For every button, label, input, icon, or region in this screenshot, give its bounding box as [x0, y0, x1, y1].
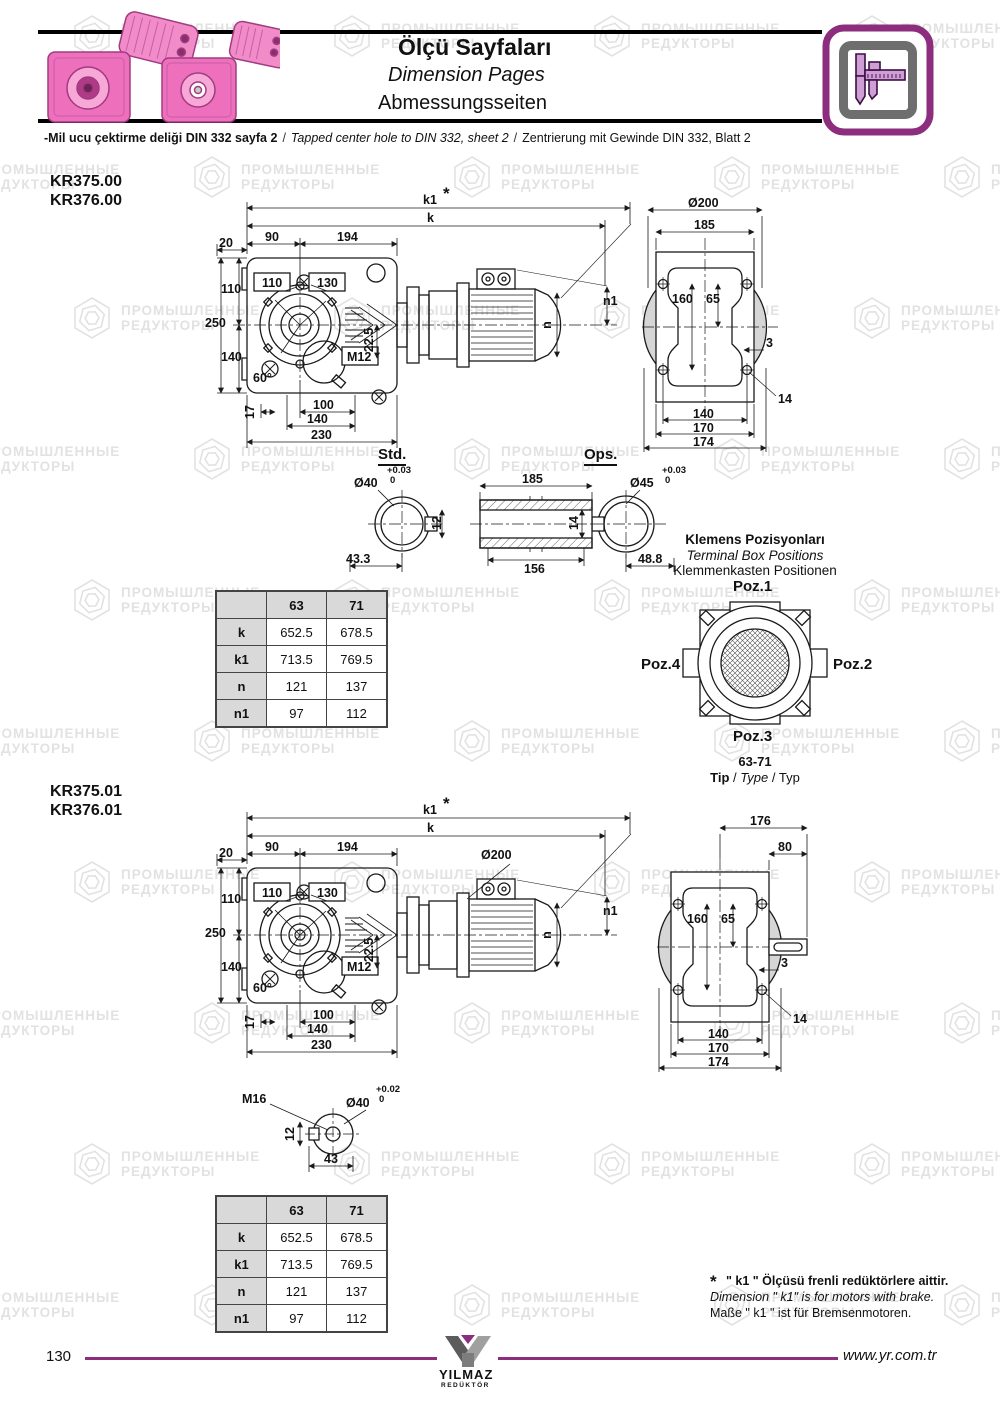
dim-194: 194 — [337, 840, 358, 854]
dim-14: 14 — [567, 516, 581, 530]
footnote-star-ref-2: * — [443, 794, 450, 814]
dim-174: 174 — [708, 1055, 729, 1069]
model-kr375-01: KR375.01 — [50, 782, 122, 801]
tip-tr: Tip — [710, 770, 729, 785]
logo-name: YILMAZ — [439, 1367, 493, 1382]
dim-80: 80 — [778, 840, 792, 854]
cell-k-63: 652.5 — [267, 619, 327, 646]
poz-2: Poz.2 — [833, 656, 872, 673]
tol-zero: 0 — [379, 1095, 384, 1105]
row-k1: k1 — [216, 1251, 267, 1278]
dim-dia45: Ø45 — [630, 476, 654, 490]
dim-dia200: Ø200 — [481, 848, 512, 862]
dim-3: 3 — [781, 956, 788, 970]
cell-n-63: 121 — [267, 1278, 327, 1305]
caliper-icon — [822, 24, 934, 136]
note-tr: -Mil ucu çektirme deliği DIN 332 sayfa 2 — [44, 131, 277, 145]
dim-156: 156 — [524, 562, 545, 576]
dim-60deg: 60° — [253, 371, 272, 385]
dimension-table-2: 63 71 k 652.5 678.5 k1 713.5 769.5 n 121… — [215, 1195, 388, 1333]
dim-160: 160 — [687, 912, 708, 926]
dim-140: 140 — [708, 1027, 729, 1041]
dim-140: 140 — [221, 960, 242, 974]
row-k: k — [216, 1224, 267, 1251]
solid-shaft-end-drawing: M16 Ø40 +0.02 0 12 43 — [230, 1072, 460, 1184]
col-71: 71 — [327, 591, 388, 619]
callout-130: 130 — [317, 886, 338, 900]
footnote-star-ref-1: * — [443, 184, 450, 204]
dim-194: 194 — [337, 230, 358, 244]
dim-14: 14 — [793, 1012, 807, 1026]
dim-dia40: Ø40 — [354, 476, 378, 490]
row-n1: n1 — [216, 700, 267, 728]
cell-n-71: 137 — [327, 673, 388, 700]
dim-3: 3 — [766, 336, 773, 350]
cell-k1-71: 769.5 — [327, 646, 388, 673]
page-title-en: Dimension Pages — [388, 64, 545, 87]
col-71: 71 — [327, 1196, 388, 1224]
page-title-tr: Ölçü Sayfaları — [398, 34, 551, 61]
row-n: n — [216, 1278, 267, 1305]
dim-k1: k1 — [423, 193, 437, 207]
brake-footnote: * " k1 " Ölçüsü frenli redüktörlere aitt… — [710, 1274, 1000, 1322]
table-corner — [216, 591, 267, 619]
front-assembly-drawing-2: k1 * k 90 194 Ø200 20 110 130 110 250 14… — [205, 800, 640, 1065]
note-sep1: / — [282, 131, 285, 145]
poz-1: Poz.1 — [733, 578, 772, 595]
catalog-page: ПРОМЫШЛЕННЫЕРЕДУКТОРЫПРОМЫШЛЕННЫЕРЕДУКТО… — [0, 0, 1000, 1414]
dim-65: 65 — [721, 912, 735, 926]
row-n1: n1 — [216, 1305, 267, 1333]
front-assembly-drawing-1: k1 * k 90 194 20 110 130 110 250 140 60°… — [205, 190, 640, 455]
col-63: 63 — [267, 591, 327, 619]
dim-17: 17 — [243, 405, 257, 419]
note-sep2: / — [514, 131, 517, 145]
dim-60deg: 60° — [253, 981, 272, 995]
cell-k1-63: 713.5 — [267, 646, 327, 673]
dim-dia40: Ø40 — [346, 1096, 370, 1110]
tol-zero: 0 — [390, 476, 395, 486]
terminal-type-line: Tip / Type / Typ — [645, 770, 865, 785]
dim-n1: n1 — [603, 904, 618, 918]
dim-140: 140 — [693, 407, 714, 421]
dim-43-3: 43.3 — [346, 552, 370, 566]
note-de: Zentrierung mit Gewinde DIN 332, Blatt 2 — [522, 131, 751, 145]
dim-17: 17 — [243, 1015, 257, 1029]
tip-de: Typ — [779, 770, 800, 785]
dim-43: 43 — [324, 1152, 338, 1166]
callout-110: 110 — [262, 276, 282, 290]
dim-n1: n1 — [603, 294, 618, 308]
dim-22-5: 22.5 — [362, 328, 376, 352]
note-en: Tapped center hole to DIN 332, sheet 2 — [291, 131, 509, 145]
tol-zerob: 0 — [665, 476, 670, 486]
back-view-drawing-2: 176 80 160 65 3 14 140 170 174 — [645, 812, 855, 1077]
poz-4: Poz.4 — [641, 656, 680, 673]
cell-n-63: 121 — [267, 673, 327, 700]
cell-n1-63: 97 — [267, 700, 327, 728]
cell-k-71: 678.5 — [327, 619, 388, 646]
row-k: k — [216, 619, 267, 646]
dim-170: 170 — [708, 1041, 729, 1055]
website-url: www.yr.com.tr — [843, 1347, 937, 1364]
cell-k-63: 652.5 — [267, 1224, 327, 1251]
dim-14: 14 — [778, 392, 792, 406]
dim-185: 185 — [522, 472, 543, 486]
back-view-drawing-1: Ø200 185 160 65 3 14 140 170 174 — [630, 192, 840, 457]
footer-rule-right — [498, 1357, 838, 1360]
label-std: Std. — [378, 446, 406, 466]
tip-sep2: / — [772, 770, 776, 785]
logo-subname: REDÜKTÖR — [441, 1382, 490, 1389]
yilmaz-logo-icon — [437, 1334, 499, 1368]
dim-20: 20 — [219, 846, 233, 860]
footnote-tr: " k1 " Ölçüsü frenli redüktörlere aittir… — [726, 1274, 1000, 1288]
terminal-size-range: 63-71 — [645, 754, 865, 769]
tip-sep1: / — [733, 770, 737, 785]
dim-110: 110 — [221, 892, 241, 906]
model-codes-1: KR375.00 KR376.00 — [50, 172, 122, 210]
dim-k: k — [427, 211, 434, 225]
footnote-star: * — [710, 1272, 717, 1292]
dim-90: 90 — [265, 840, 279, 854]
dim-100: 100 — [313, 1008, 334, 1022]
dim-20: 20 — [219, 236, 233, 250]
dim-170: 170 — [693, 421, 714, 435]
shaft-std-ops-drawing: Std. Ops. Ø40 +0.03 0 12 43.3 185 156 14… — [330, 446, 690, 580]
callout-110: 110 — [262, 886, 282, 900]
dim-65: 65 — [706, 292, 720, 306]
dim-174: 174 — [693, 435, 714, 449]
page-number: 130 — [46, 1348, 71, 1365]
footnote-en: Dimension " k1" is for motors with brake… — [710, 1290, 1000, 1304]
cell-k1-63: 713.5 — [267, 1251, 327, 1278]
table-corner — [216, 1196, 267, 1224]
gearmotor-photos — [40, 6, 280, 134]
page-title-de: Abmessungsseiten — [378, 92, 547, 115]
dim-k1: k1 — [423, 803, 437, 817]
dim-m16: M16 — [242, 1092, 266, 1106]
dim-176: 176 — [750, 814, 771, 828]
dim-90: 90 — [265, 230, 279, 244]
cell-n1-63: 97 — [267, 1305, 327, 1333]
dim-230: 230 — [311, 1038, 332, 1052]
dim-250: 250 — [205, 926, 226, 940]
dim-n: n — [540, 321, 554, 329]
terminal-box-positions: Klemens Pozisyonları Terminal Box Positi… — [645, 528, 875, 790]
footnote-de: Maße " k1 " ist für Bremsenmotoren. — [710, 1306, 1000, 1320]
din-note: -Mil ucu çektirme deliği DIN 332 sayfa 2… — [44, 131, 751, 145]
dim-dia200: Ø200 — [688, 196, 719, 210]
model-kr376-00: KR376.00 — [50, 191, 122, 210]
dim-110: 110 — [221, 282, 241, 296]
dim-250: 250 — [205, 316, 226, 330]
dim-140: 140 — [221, 350, 242, 364]
model-kr375-00: KR375.00 — [50, 172, 122, 191]
dim-160: 160 — [672, 292, 693, 306]
model-kr376-01: KR376.01 — [50, 801, 122, 820]
poz-3: Poz.3 — [733, 728, 772, 745]
dim-230: 230 — [311, 428, 332, 442]
model-codes-2: KR375.01 KR376.01 — [50, 782, 122, 820]
dim-140b: 140 — [307, 412, 328, 426]
dim-185: 185 — [694, 218, 715, 232]
cell-n-71: 137 — [327, 1278, 388, 1305]
dim-100: 100 — [313, 398, 334, 412]
dimension-table-1: 63 71 k 652.5 678.5 k1 713.5 769.5 n 121… — [215, 590, 388, 728]
col-63: 63 — [267, 1196, 327, 1224]
dim-12: 12 — [430, 516, 444, 530]
callout-130: 130 — [317, 276, 338, 290]
dim-k: k — [427, 821, 434, 835]
dim-n: n — [540, 931, 554, 939]
label-ops: Ops. — [584, 446, 617, 466]
cell-k1-71: 769.5 — [327, 1251, 388, 1278]
row-n: n — [216, 673, 267, 700]
footer-rule-left — [85, 1357, 437, 1360]
dim-22-5: 22.5 — [362, 938, 376, 962]
cell-n1-71: 112 — [327, 700, 388, 728]
row-k1: k1 — [216, 646, 267, 673]
dim-12: 12 — [283, 1127, 297, 1141]
cell-k-71: 678.5 — [327, 1224, 388, 1251]
tip-en: Type — [740, 770, 768, 785]
dim-140b: 140 — [307, 1022, 328, 1036]
cell-n1-71: 112 — [327, 1305, 388, 1333]
